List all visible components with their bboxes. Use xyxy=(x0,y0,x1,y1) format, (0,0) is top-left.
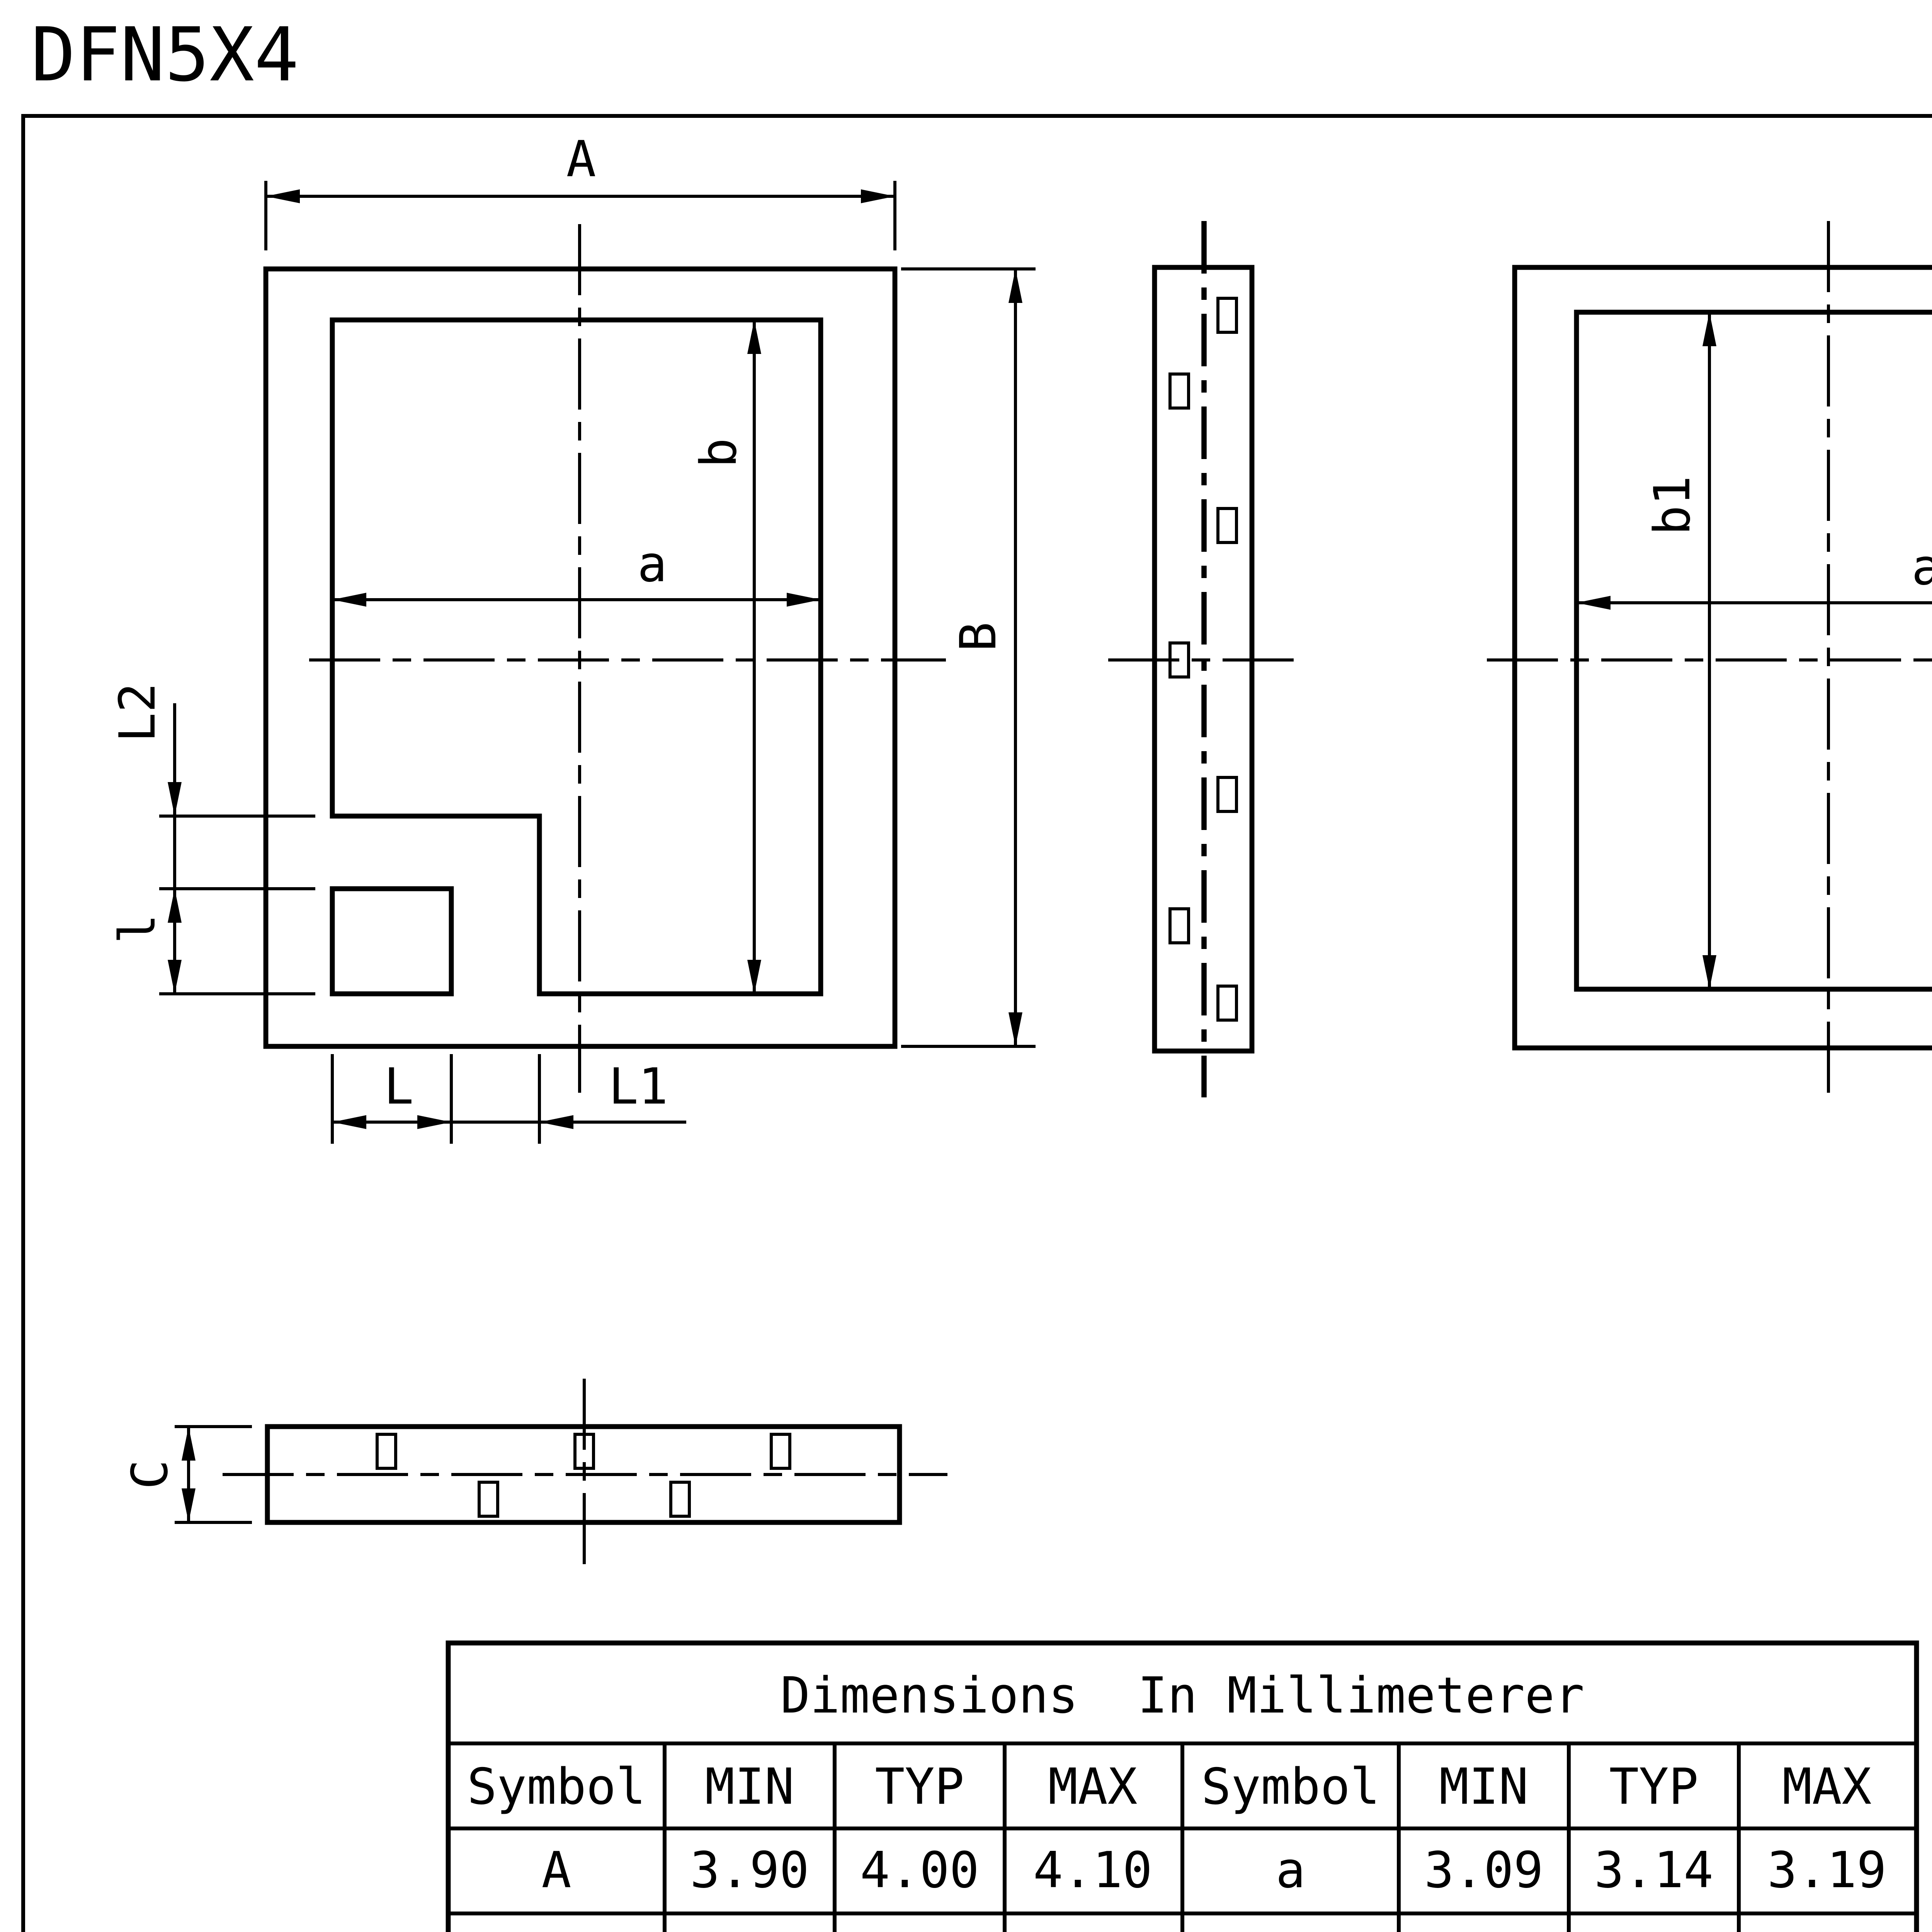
drawing-border xyxy=(23,116,1932,1932)
dim-label-a1: a1 xyxy=(1912,539,1932,596)
dim-B-lines xyxy=(901,269,1036,1046)
dim-label-l: l xyxy=(109,914,167,944)
table-cell: 4.29 xyxy=(1424,1927,1543,1932)
table-header: TYP xyxy=(1609,1758,1698,1816)
dim-label-b1: b1 xyxy=(1644,476,1701,535)
dim-label-B: B xyxy=(950,622,1007,651)
arrowhead-icon xyxy=(168,782,182,816)
bottom-view: b1 a1 xyxy=(1487,221,1932,1097)
arrowhead-icon xyxy=(168,960,182,994)
dim-label-b: b xyxy=(690,438,748,468)
table-header: MAX xyxy=(1782,1758,1871,1816)
front-view: C xyxy=(121,1379,947,1570)
table-cell: 3.14 xyxy=(1594,1842,1713,1899)
table-cell: 4.34 xyxy=(1594,1927,1713,1932)
table-cell: A xyxy=(541,1842,571,1899)
arrowhead-icon xyxy=(787,593,821,607)
drawing-canvas: DFN5X4 Unit:mm Rev.01 202111 A B a b xyxy=(0,0,1932,1932)
table-cell: 5.10 xyxy=(1033,1927,1152,1932)
table-cell: 4.00 xyxy=(860,1842,979,1899)
table-cell: 3.19 xyxy=(1767,1842,1886,1899)
front-view-pad xyxy=(377,1434,396,1468)
arrowhead-icon xyxy=(1702,312,1716,346)
table-cell: B xyxy=(541,1927,571,1932)
arrowhead-icon xyxy=(332,1115,366,1129)
top-view: A B a b L2 l L L1 xyxy=(109,131,1036,1144)
side-view xyxy=(1108,221,1303,1097)
front-view-pad xyxy=(671,1482,689,1516)
table-header: MAX xyxy=(1048,1758,1137,1816)
side-view-pad xyxy=(1170,909,1189,943)
arrowhead-icon xyxy=(332,593,366,607)
dim-label-L1: L1 xyxy=(609,1058,668,1116)
dim-label-a: a xyxy=(637,536,667,593)
front-view-pad xyxy=(771,1434,790,1468)
table-cell: 3.09 xyxy=(1424,1842,1543,1899)
arrowhead-icon xyxy=(1577,596,1611,610)
dim-label-C: C xyxy=(121,1459,179,1489)
table-header: MIN xyxy=(1439,1758,1528,1816)
table-header: Symbol xyxy=(467,1758,646,1816)
side-view-pad xyxy=(1218,777,1236,811)
top-view-corner-pad xyxy=(332,889,451,994)
dimensions-table: Dimensions In Millimeterer Symbol MIN TY… xyxy=(448,1643,1917,1932)
table-cell: 4.39 xyxy=(1767,1927,1886,1932)
arrowhead-icon xyxy=(747,960,761,994)
table-header: TYP xyxy=(875,1758,964,1816)
arrowhead-icon xyxy=(182,1427,196,1461)
table-cell: 3.90 xyxy=(690,1842,809,1899)
side-view-pad xyxy=(1218,298,1236,332)
arrowhead-icon xyxy=(168,889,182,923)
arrowhead-icon xyxy=(417,1115,451,1129)
arrowhead-icon xyxy=(1702,955,1716,989)
table-title: Dimensions In Millimeterer xyxy=(781,1667,1585,1725)
side-view-pad xyxy=(1170,374,1189,408)
table-cell: b xyxy=(1276,1927,1305,1932)
table-header: Symbol xyxy=(1201,1758,1380,1816)
front-view-pad xyxy=(479,1482,498,1516)
table-header: MIN xyxy=(705,1758,794,1816)
top-view-pad-outline xyxy=(332,320,821,994)
arrowhead-icon xyxy=(1009,269,1022,303)
side-view-pad xyxy=(1218,986,1236,1020)
arrowhead-icon xyxy=(266,189,300,203)
arrowhead-icon xyxy=(861,189,895,203)
arrowhead-icon xyxy=(182,1488,196,1522)
table-cell: 4.10 xyxy=(1033,1842,1152,1899)
dim-label-A: A xyxy=(566,131,596,188)
table-cell: a xyxy=(1276,1842,1305,1899)
arrowhead-icon xyxy=(747,320,761,354)
bottom-view-pad-outline xyxy=(1577,312,1932,989)
drawing-sheet: DFN5X4 Unit:mm Rev.01 202111 A B a b xyxy=(0,0,1932,1932)
dim-label-L: L xyxy=(384,1058,413,1116)
arrowhead-icon xyxy=(539,1115,573,1129)
dim-label-L2: L2 xyxy=(109,683,167,742)
table-cell: 4.90 xyxy=(690,1927,809,1932)
dim-L2-l-lines xyxy=(159,703,315,994)
page-title: DFN5X4 xyxy=(31,12,299,98)
side-view-pad xyxy=(1218,509,1236,543)
arrowhead-icon xyxy=(1009,1012,1022,1046)
table-cell: 5.00 xyxy=(860,1927,979,1932)
